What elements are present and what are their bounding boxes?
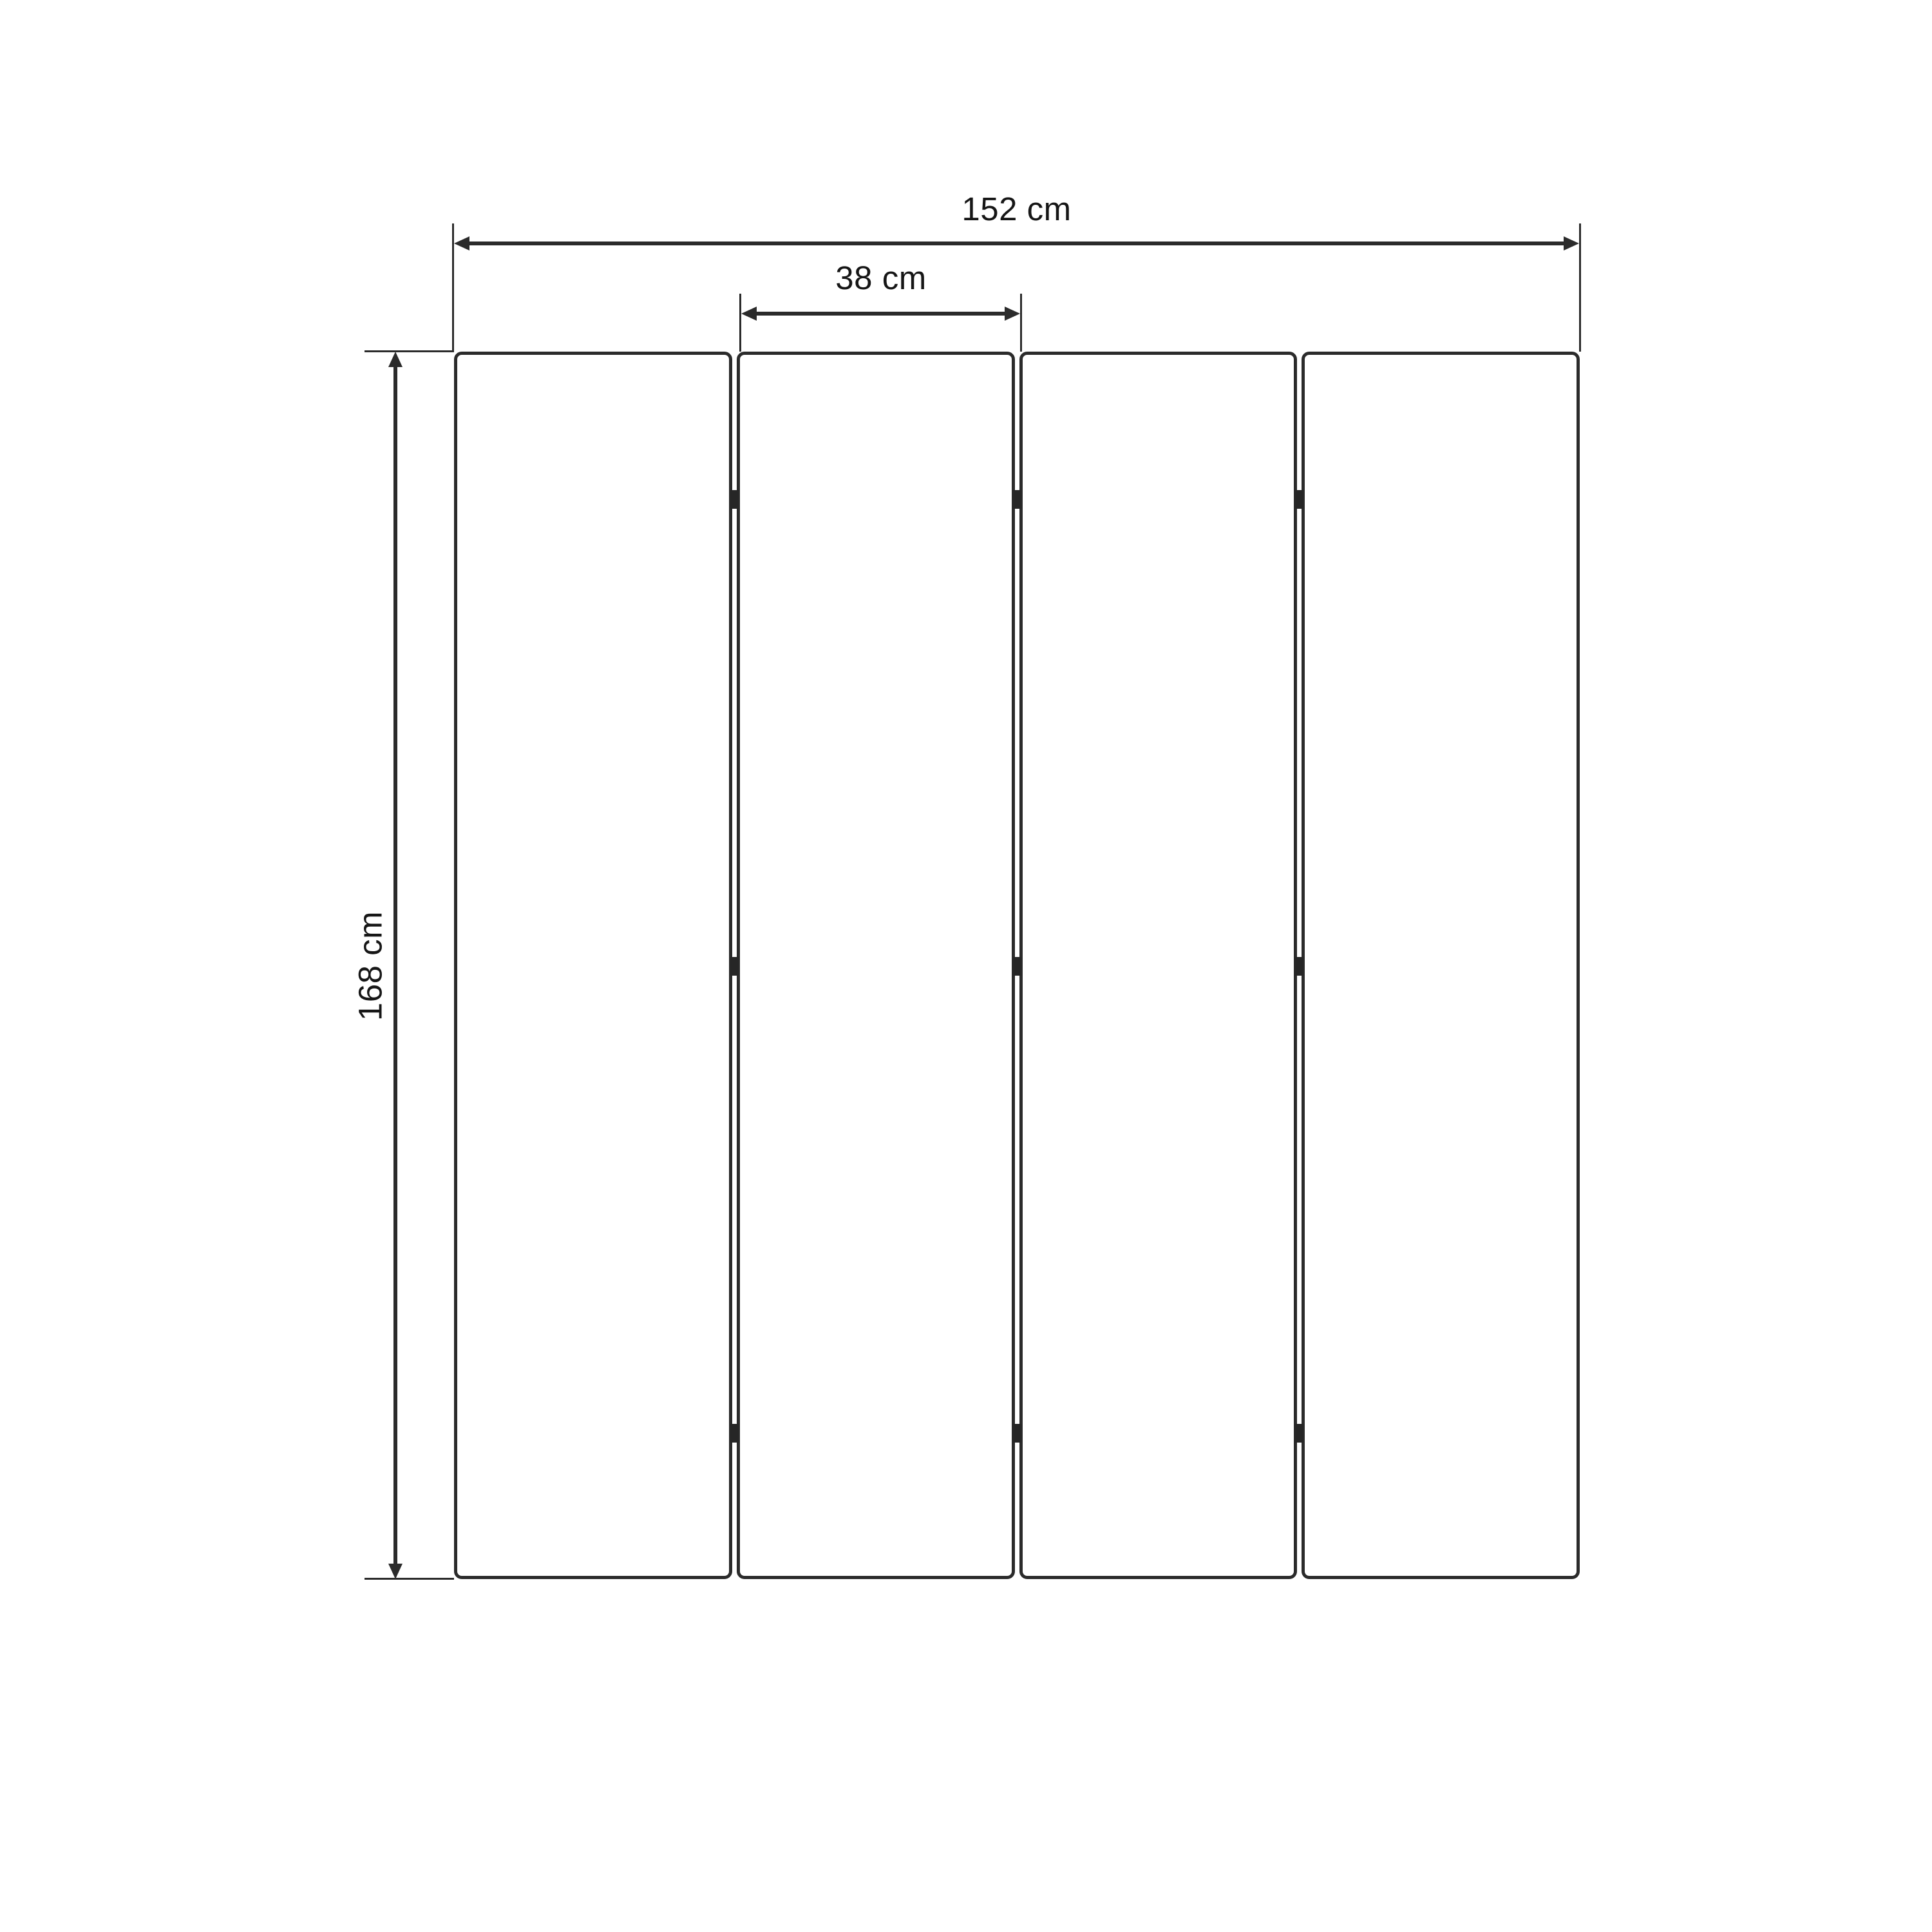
panel-width-label: 38 cm: [741, 260, 1021, 296]
hinge-gap3-row3: [1295, 1424, 1303, 1443]
hinge-gap3-row1: [1295, 490, 1303, 509]
total-width-label: 152 cm: [454, 191, 1579, 227]
panel-width-dimension-arrow: [741, 307, 1020, 321]
hinge-gap2-row1: [1013, 490, 1021, 509]
height-dimension-arrow: [388, 352, 402, 1579]
height-label: 168 cm: [353, 911, 388, 1021]
panel-2: [737, 352, 1015, 1579]
extension-line-right: [1020, 294, 1022, 352]
hinge-gap1-row1: [730, 490, 739, 509]
panel-3: [1019, 352, 1298, 1579]
arrowhead-down-icon: [388, 1564, 402, 1579]
dimension-diagram: 152 cm 38 cm 168 cm: [0, 0, 1932, 1932]
hinge-gap1-row2: [730, 957, 739, 976]
dimension-line: [467, 241, 1566, 245]
hinge-gap2-row3: [1013, 1424, 1021, 1443]
dimension-line: [754, 312, 1007, 316]
panel-4: [1302, 352, 1580, 1579]
hinge-gap2-row2: [1013, 957, 1021, 976]
hinge-gap1-row3: [730, 1424, 739, 1443]
arrowhead-right-icon: [1005, 307, 1020, 321]
extension-line-left: [739, 294, 741, 352]
extension-line-top: [365, 350, 454, 352]
dimension-line: [393, 365, 397, 1566]
arrowhead-right-icon: [1564, 236, 1579, 251]
hinge-gap3-row2: [1295, 957, 1303, 976]
panel-1: [454, 352, 732, 1579]
total-width-dimension-arrow: [454, 236, 1579, 251]
extension-line-right: [1579, 223, 1581, 352]
extension-line-bottom: [365, 1578, 454, 1580]
